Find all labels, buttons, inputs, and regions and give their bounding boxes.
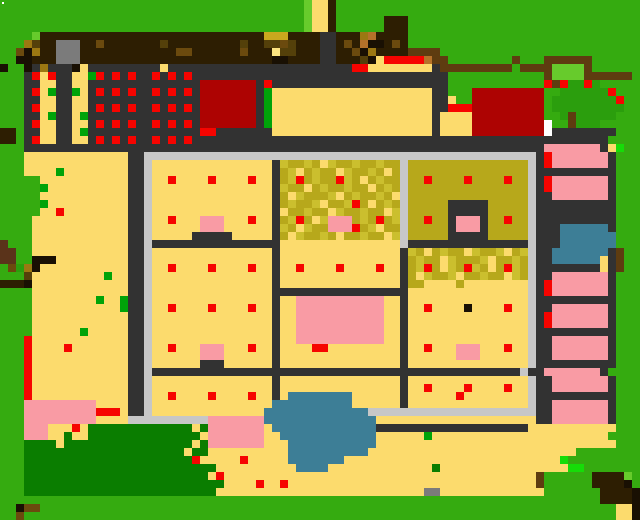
game-map — [0, 0, 640, 520]
pixel-map-canvas — [0, 0, 640, 520]
